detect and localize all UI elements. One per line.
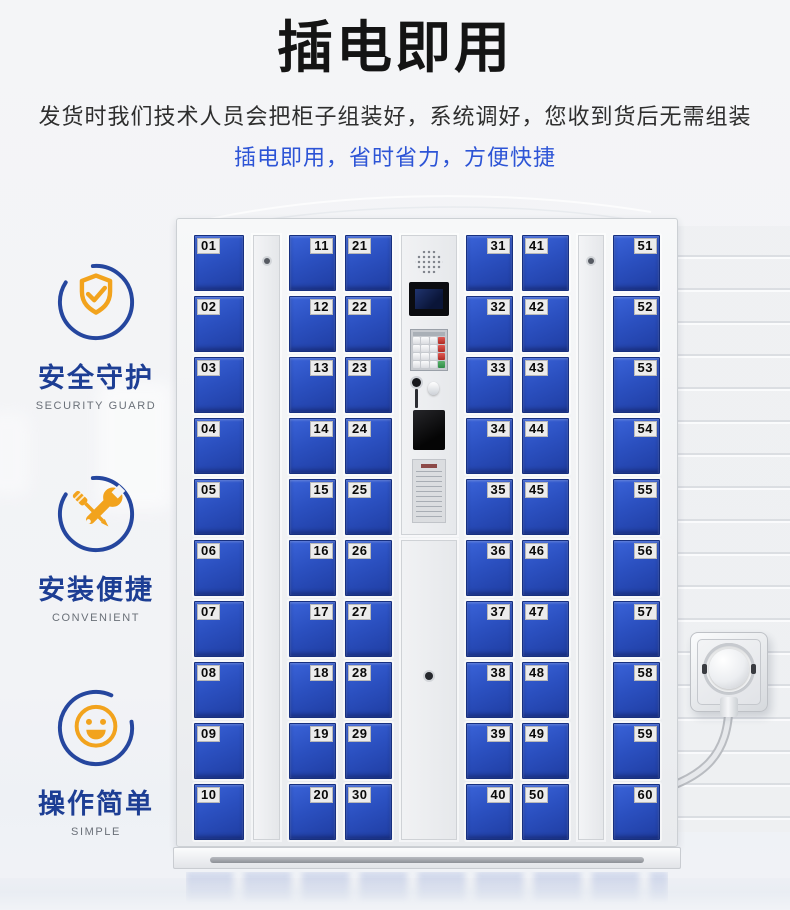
locker-door-54: 54 — [613, 418, 660, 474]
divider-panel — [578, 235, 604, 840]
locker-door-40: 40 — [466, 784, 513, 840]
door-number: 17 — [310, 604, 333, 620]
keypad-key — [438, 361, 445, 368]
locker-door-56: 56 — [613, 540, 660, 596]
promo-page: 插电即用 发货时我们技术人员会把柜子组装好，系统调好，您收到货后无需组装 插电即… — [0, 0, 790, 910]
door-number: 34 — [487, 421, 510, 437]
keypad-key — [413, 353, 420, 360]
door-number: 16 — [310, 543, 333, 559]
socket-clip — [702, 664, 707, 674]
door-number: 12 — [310, 299, 333, 315]
locker-door-32: 32 — [466, 296, 513, 352]
door-number: 29 — [348, 726, 371, 742]
locker-door-13: 13 — [289, 357, 336, 413]
door-number: 32 — [487, 299, 510, 315]
keypad-key — [413, 361, 420, 368]
screw-icon — [588, 258, 594, 264]
locker-door-12: 12 — [289, 296, 336, 352]
door-number: 23 — [348, 360, 371, 376]
feature-label-zh: 安装便捷 — [18, 568, 174, 607]
locker-door-31: 31 — [466, 235, 513, 291]
locker-door-07: 07 — [194, 601, 244, 657]
keypad-key — [430, 361, 437, 368]
feature-label-en: SECURITY GUARD — [18, 400, 174, 412]
plug-neck — [720, 697, 738, 717]
locker-door-19: 19 — [289, 723, 336, 779]
door-number: 39 — [487, 726, 510, 742]
door-number: 27 — [348, 604, 371, 620]
door-number: 48 — [525, 665, 548, 681]
locker-door-18: 18 — [289, 662, 336, 718]
locker-door-02: 02 — [194, 296, 244, 352]
locker-door-01: 01 — [194, 235, 244, 291]
door-number: 35 — [487, 482, 510, 498]
door-number: 22 — [348, 299, 371, 315]
locker-door-50: 50 — [522, 784, 569, 840]
keypad — [410, 329, 448, 371]
door-number: 45 — [525, 482, 548, 498]
notice-sticker — [412, 459, 446, 523]
divider-panel — [253, 235, 280, 840]
locker-door-53: 53 — [613, 357, 660, 413]
keypad-key — [421, 353, 428, 360]
door-number: 05 — [197, 482, 220, 498]
locker-door-59: 59 — [613, 723, 660, 779]
locker-door-52: 52 — [613, 296, 660, 352]
power-plug — [709, 649, 749, 689]
locker-door-03: 03 — [194, 357, 244, 413]
socket-clip — [751, 664, 756, 674]
door-number: 04 — [197, 421, 220, 437]
locker-door-17: 17 — [289, 601, 336, 657]
subtitle-text: 发货时我们技术人员会把柜子组装好，系统调好，您收到货后无需组装 — [0, 99, 790, 131]
control-panel — [401, 235, 457, 535]
locker-door-05: 05 — [194, 479, 244, 535]
door-number: 59 — [634, 726, 657, 742]
crossed-tools-icon — [52, 470, 140, 558]
locker-door-30: 30 — [345, 784, 392, 840]
locker-door-11: 11 — [289, 235, 336, 291]
floor-reflection — [186, 872, 668, 904]
locker-door-16: 16 — [289, 540, 336, 596]
door-number: 43 — [525, 360, 548, 376]
page-title: 插电即用 — [0, 14, 790, 81]
door-number: 13 — [310, 360, 333, 376]
feature-security: 安全守护 SECURITY GUARD — [18, 258, 174, 412]
door-number: 09 — [197, 726, 220, 742]
door-number: 55 — [634, 482, 657, 498]
cabinet-base — [173, 847, 681, 869]
speaker-grille-icon — [415, 250, 443, 274]
control-panel-column — [401, 235, 457, 840]
door-number: 52 — [634, 299, 657, 315]
door-number: 44 — [525, 421, 548, 437]
locker-door-21: 21 — [345, 235, 392, 291]
locker-door-58: 58 — [613, 662, 660, 718]
keypad-key — [430, 353, 437, 360]
locker-door-28: 28 — [345, 662, 392, 718]
locker-door-33: 33 — [466, 357, 513, 413]
locker-door-55: 55 — [613, 479, 660, 535]
keypad-key — [438, 345, 445, 352]
door-number: 26 — [348, 543, 371, 559]
keyhole-icon — [425, 672, 433, 680]
door-number: 15 — [310, 482, 333, 498]
smiley-face-icon — [52, 684, 140, 772]
door-number: 60 — [634, 787, 657, 803]
header: 插电即用 发货时我们技术人员会把柜子组装好，系统调好，您收到货后无需组装 插电即… — [0, 0, 790, 172]
maintenance-door — [401, 540, 457, 840]
door-number: 38 — [487, 665, 510, 681]
door-number: 19 — [310, 726, 333, 742]
locker-door-48: 48 — [522, 662, 569, 718]
keypad-key — [438, 337, 445, 344]
locker-door-35: 35 — [466, 479, 513, 535]
locker-door-47: 47 — [522, 601, 569, 657]
feature-simple: 操作简单 SIMPLE — [18, 684, 174, 838]
display-screen — [409, 282, 449, 316]
door-number: 41 — [525, 238, 548, 254]
locker-door-36: 36 — [466, 540, 513, 596]
feature-label-zh: 操作简单 — [18, 782, 174, 821]
locker-door-46: 46 — [522, 540, 569, 596]
feature-list: 安全守护 SECURITY GUARD — [18, 258, 174, 896]
locker-door-44: 44 — [522, 418, 569, 474]
door-number: 56 — [634, 543, 657, 559]
door-number: 37 — [487, 604, 510, 620]
keypad-keys — [413, 337, 445, 368]
socket-plate — [697, 639, 761, 705]
door-number: 51 — [634, 238, 657, 254]
locker-door-10: 10 — [194, 784, 244, 840]
panel-lock — [402, 376, 456, 410]
pickup-window — [413, 410, 445, 450]
locker-door-14: 14 — [289, 418, 336, 474]
smart-locker-cabinet: 0102030405060708091011121314151617181920… — [176, 218, 678, 847]
door-number: 02 — [197, 299, 220, 315]
keypad-header — [413, 332, 445, 336]
key-icon — [415, 389, 418, 408]
locker-door-24: 24 — [345, 418, 392, 474]
lock-knob — [428, 382, 439, 395]
locker-door-22: 22 — [345, 296, 392, 352]
keypad-key — [430, 345, 437, 352]
locker-grid: 0102030405060708091011121314151617181920… — [177, 219, 677, 848]
door-number: 58 — [634, 665, 657, 681]
shield-check-icon — [52, 258, 140, 346]
locker-door-37: 37 — [466, 601, 513, 657]
keypad-key — [413, 345, 420, 352]
locker-door-60: 60 — [613, 784, 660, 840]
door-number: 47 — [525, 604, 548, 620]
locker-door-29: 29 — [345, 723, 392, 779]
door-number: 01 — [197, 238, 220, 254]
highlight-text: 插电即用，省时省力，方便快捷 — [0, 140, 790, 172]
door-number: 46 — [525, 543, 548, 559]
keypad-key — [413, 337, 420, 344]
keypad-key — [430, 337, 437, 344]
locker-door-20: 20 — [289, 784, 336, 840]
locker-door-27: 27 — [345, 601, 392, 657]
door-number: 06 — [197, 543, 220, 559]
door-number: 50 — [525, 787, 548, 803]
door-number: 49 — [525, 726, 548, 742]
door-number: 57 — [634, 604, 657, 620]
locker-door-08: 08 — [194, 662, 244, 718]
keypad-key — [438, 353, 445, 360]
locker-door-15: 15 — [289, 479, 336, 535]
locker-door-57: 57 — [613, 601, 660, 657]
door-number: 54 — [634, 421, 657, 437]
keypad-key — [421, 361, 428, 368]
screw-icon — [264, 258, 270, 264]
locker-door-45: 45 — [522, 479, 569, 535]
locker-door-25: 25 — [345, 479, 392, 535]
door-number: 21 — [348, 238, 371, 254]
locker-door-26: 26 — [345, 540, 392, 596]
feature-label-en: SIMPLE — [18, 826, 174, 838]
locker-door-09: 09 — [194, 723, 244, 779]
feature-install: 安装便捷 CONVENIENT — [18, 470, 174, 624]
door-number: 03 — [197, 360, 220, 376]
door-number: 31 — [487, 238, 510, 254]
door-number: 10 — [197, 787, 220, 803]
door-number: 25 — [348, 482, 371, 498]
feature-label-en: CONVENIENT — [18, 612, 174, 624]
locker-door-42: 42 — [522, 296, 569, 352]
keypad-key — [421, 345, 428, 352]
door-number: 08 — [197, 665, 220, 681]
socket-recess — [703, 643, 755, 695]
door-number: 36 — [487, 543, 510, 559]
door-number: 33 — [487, 360, 510, 376]
feature-label-zh: 安全守护 — [18, 356, 174, 395]
door-number: 20 — [310, 787, 333, 803]
locker-door-38: 38 — [466, 662, 513, 718]
locker-door-43: 43 — [522, 357, 569, 413]
locker-door-49: 49 — [522, 723, 569, 779]
locker-door-51: 51 — [613, 235, 660, 291]
door-number: 53 — [634, 360, 657, 376]
wall-socket — [690, 632, 768, 712]
locker-door-23: 23 — [345, 357, 392, 413]
keypad-key — [421, 337, 428, 344]
door-number: 28 — [348, 665, 371, 681]
locker-door-39: 39 — [466, 723, 513, 779]
locker-door-04: 04 — [194, 418, 244, 474]
door-number: 24 — [348, 421, 371, 437]
locker-door-06: 06 — [194, 540, 244, 596]
door-number: 18 — [310, 665, 333, 681]
door-number: 14 — [310, 421, 333, 437]
locker-door-34: 34 — [466, 418, 513, 474]
keyhole-icon — [412, 378, 421, 387]
door-number: 11 — [310, 238, 333, 254]
door-number: 30 — [348, 787, 371, 803]
door-number: 07 — [197, 604, 220, 620]
locker-door-41: 41 — [522, 235, 569, 291]
door-number: 42 — [525, 299, 548, 315]
door-number: 40 — [487, 787, 510, 803]
